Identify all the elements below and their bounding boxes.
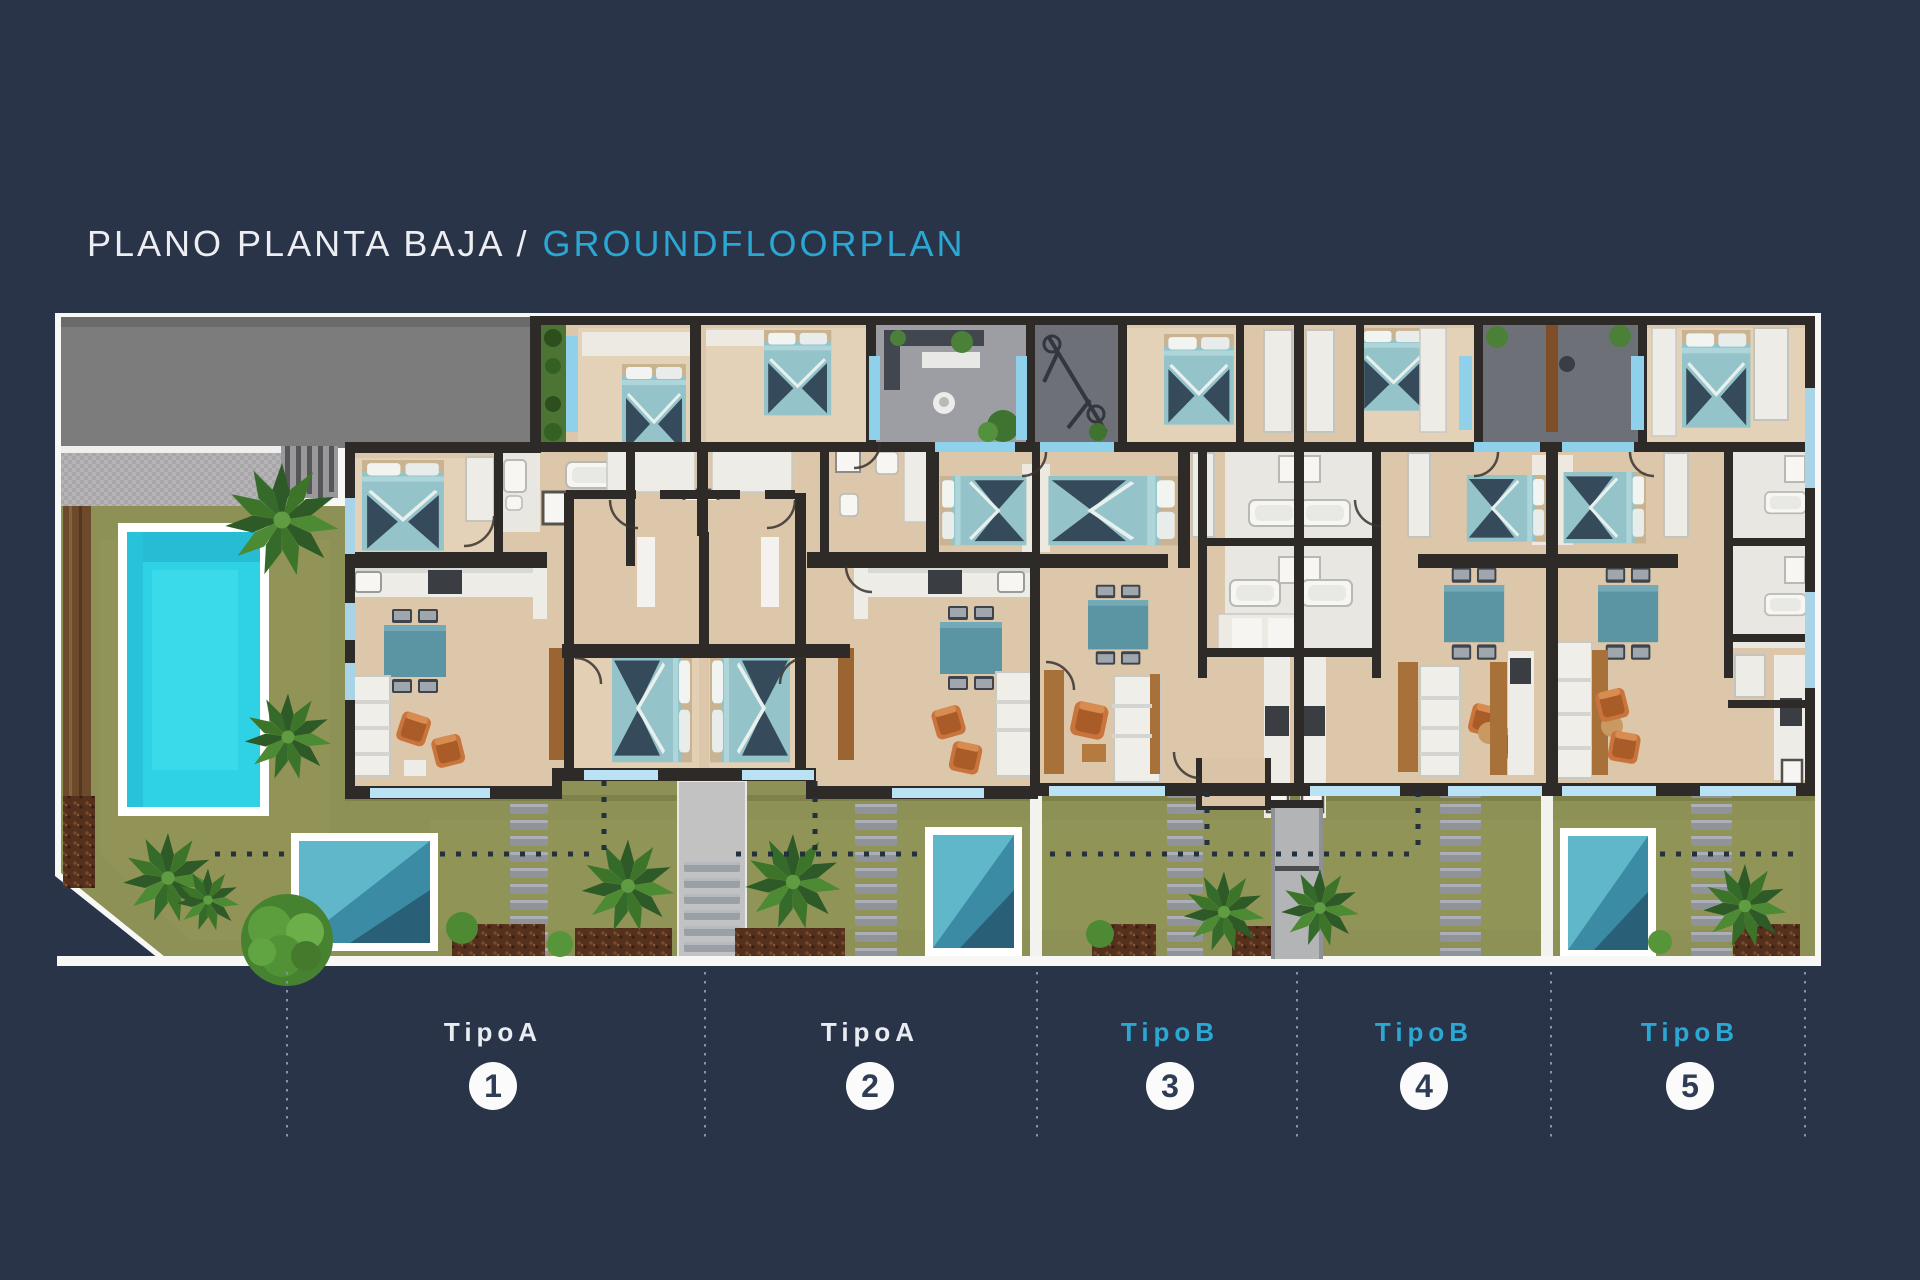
svg-text:PLANO PLANTA BAJA / GROUNDFLO: PLANO PLANTA BAJA / GROUNDFLOORPLAN — [87, 223, 966, 264]
svg-text:TipoA: TipoA — [821, 1017, 919, 1047]
svg-text:TipoA: TipoA — [444, 1017, 542, 1047]
svg-text:3: 3 — [1161, 1068, 1179, 1104]
svg-text:TipoB: TipoB — [1375, 1017, 1473, 1047]
svg-text:TipoB: TipoB — [1121, 1017, 1219, 1047]
svg-text:1: 1 — [484, 1068, 502, 1104]
svg-text:4: 4 — [1415, 1068, 1433, 1104]
svg-text:5: 5 — [1681, 1068, 1699, 1104]
svg-text:2: 2 — [861, 1068, 879, 1104]
svg-text:TipoB: TipoB — [1641, 1017, 1739, 1047]
